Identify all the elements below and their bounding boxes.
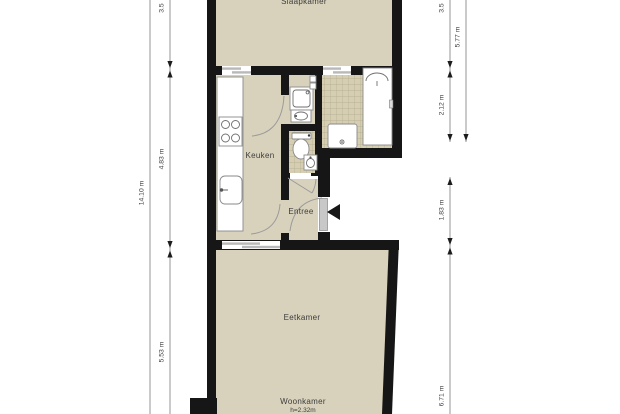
dim-label-left-seg1: 4.83 m xyxy=(159,148,166,169)
kitchen-counter xyxy=(217,77,243,231)
dim-label-left-seg0: 3.5 xyxy=(159,3,166,13)
kitchen-sink-icon xyxy=(220,176,242,204)
kitchen-fixtures xyxy=(217,77,243,231)
room-label-keuken: Keuken xyxy=(246,151,275,160)
dim-label-right-seg0: 3.5 xyxy=(439,3,446,13)
wall-left-bottom-step xyxy=(190,398,217,414)
entrance-door xyxy=(320,199,328,231)
dimension-left-inner: 3.5 4.83 m 5.53 m xyxy=(159,0,173,414)
wall-entree-east-a xyxy=(318,158,330,197)
dim-label-right-seg2: 1.83 m xyxy=(439,199,446,220)
wall-meter-icon xyxy=(310,83,316,89)
cooktop-icon xyxy=(219,117,242,146)
sliding-door-slaapkamer-keuken xyxy=(222,66,251,75)
dim-label-right-seg1: 2.12 m xyxy=(439,94,446,115)
dim-label-left-seg2: 5.53 m xyxy=(159,341,166,362)
wall-keuken-utility-b xyxy=(281,126,289,200)
room-eetkamer-woonkamer-floor xyxy=(216,250,390,414)
sliding-door-slaapkamer-bathroom xyxy=(323,66,351,75)
wall-keuken-utility-c xyxy=(281,233,289,240)
sliding-door-keuken-eetkamer xyxy=(222,241,280,249)
wall-bathroom-south-outer xyxy=(315,148,402,158)
dim-label-right-seg3: 6.71 m xyxy=(439,385,446,406)
wall-utility-toilet xyxy=(281,124,318,131)
shower-cabin-icon xyxy=(363,68,393,145)
room-slaapkamer-floor xyxy=(216,0,392,66)
room-label-slaapkamer: Slaapkamer xyxy=(281,0,327,6)
wall-keuken-utility-a xyxy=(281,75,289,95)
dim-label-left-outer: 14.10 m xyxy=(139,180,146,205)
shower-cabin-handle xyxy=(390,100,394,108)
room-label-eetkamer: Eetkamer xyxy=(284,313,321,322)
shower-tray-icon xyxy=(328,124,357,148)
wall-right-top-outer xyxy=(392,0,402,158)
hand-basin-icon xyxy=(304,155,317,170)
room-label-woonkamer: Woonkamer xyxy=(280,397,326,406)
washbasin-icon xyxy=(291,110,311,122)
room-label-entree: Entree xyxy=(288,207,314,216)
floor-plan-canvas: Slaapkamer Keuken Entree Eetkamer Woonka… xyxy=(0,0,620,414)
wall-left-outer xyxy=(207,0,216,398)
wall-toilet-south-jamb xyxy=(311,173,318,176)
dimension-right-outer: 5.77 m xyxy=(455,0,469,142)
dim-label-right-outer: 5.77 m xyxy=(455,26,462,47)
washing-machine-icon xyxy=(290,87,313,110)
wall-meter-icon xyxy=(310,76,316,82)
dimension-right-inner: 3.5 2.12 m 1.83 m 6.71 m xyxy=(439,0,453,414)
dimension-left-outer: 14.10 m xyxy=(139,0,151,414)
room-label-woonkamer-height: h=2.32m xyxy=(290,407,315,414)
floor-plan-page: Slaapkamer Keuken Entree Eetkamer Woonka… xyxy=(0,0,620,414)
